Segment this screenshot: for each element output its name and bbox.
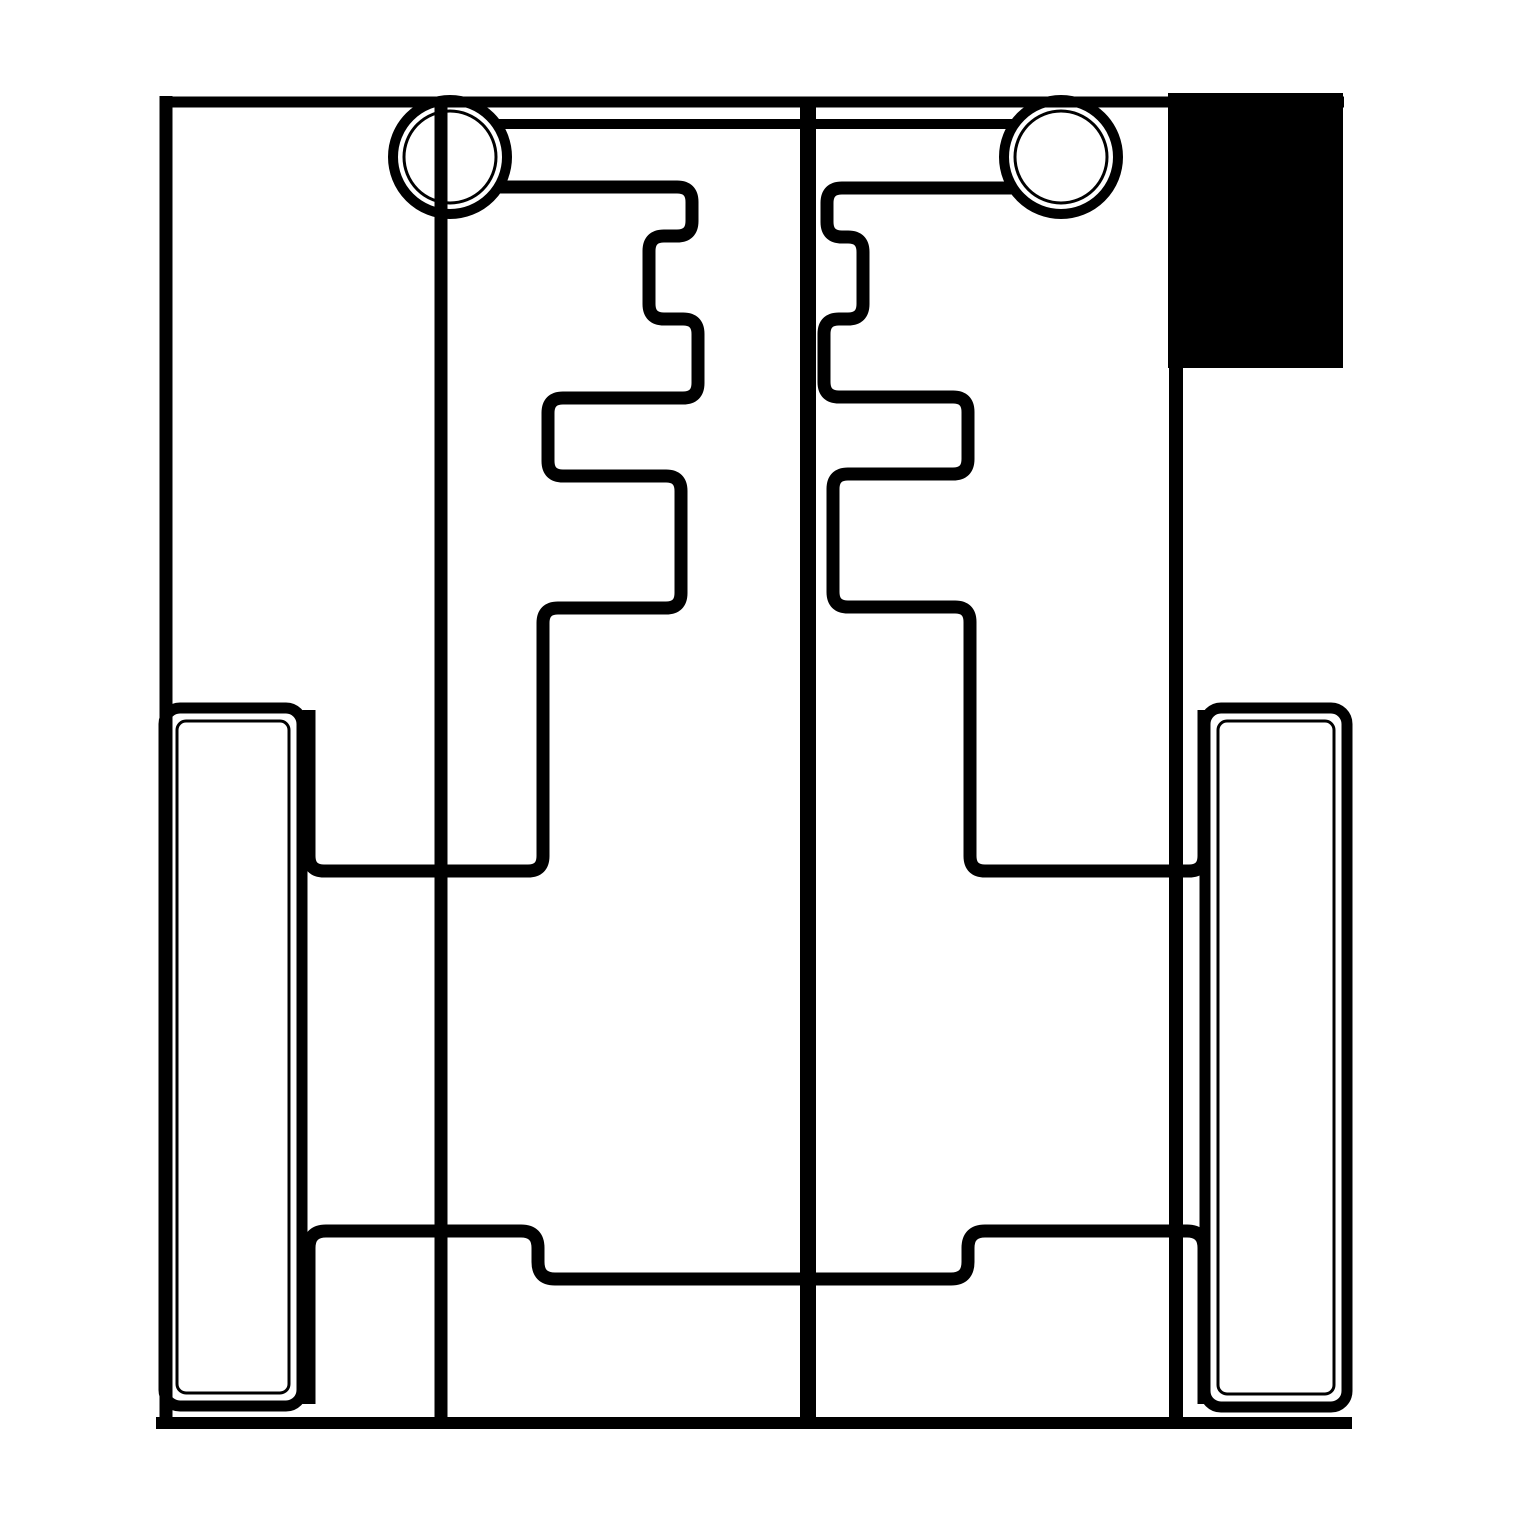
corner-block [1168, 93, 1343, 368]
drawing-page [0, 0, 1519, 1519]
right-guide-pin-circle [1004, 100, 1118, 214]
technical-drawing [0, 0, 1519, 1519]
left-guide-pin-circle [393, 100, 507, 214]
